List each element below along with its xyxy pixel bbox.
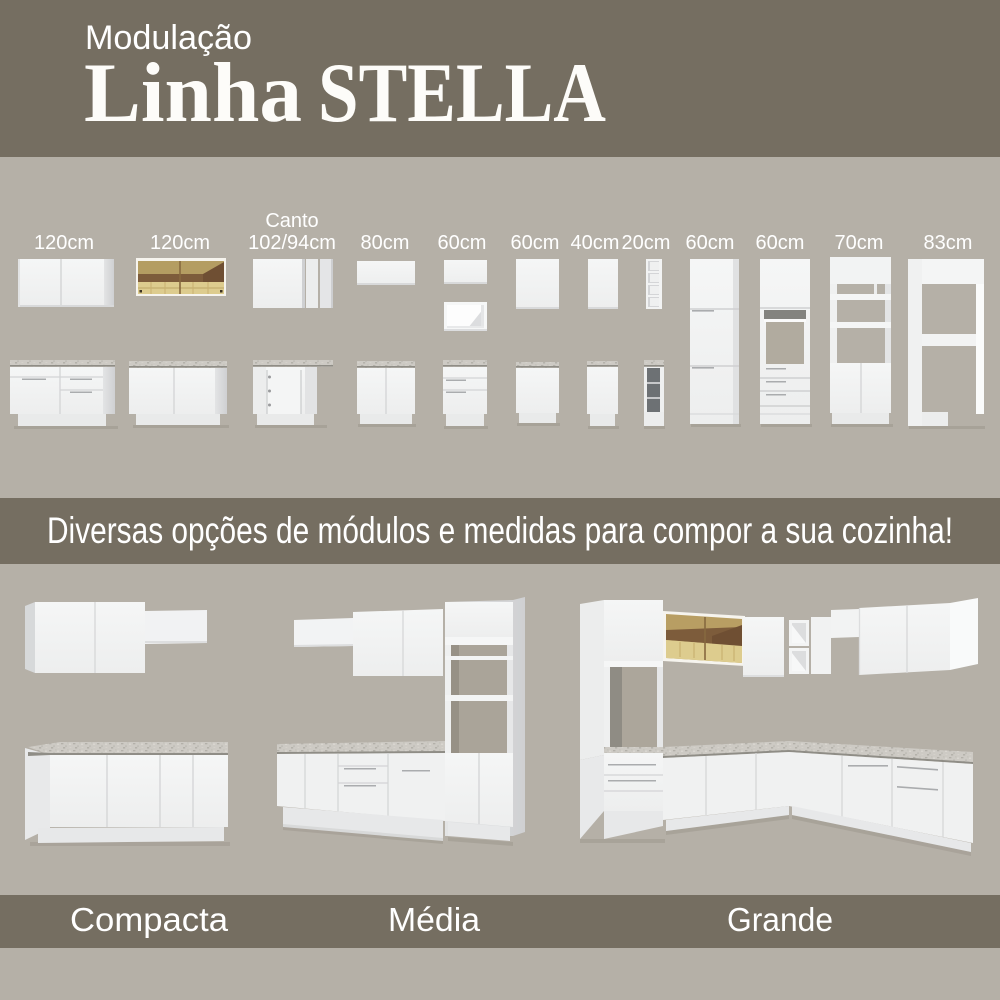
svg-text:60cm: 60cm	[756, 232, 805, 254]
svg-text:120cm: 120cm	[34, 232, 94, 254]
svg-text:Grande: Grande	[727, 901, 833, 938]
svg-text:20cm: 20cm	[622, 232, 671, 254]
svg-text:60cm: 60cm	[438, 232, 487, 254]
svg-text:Média: Média	[388, 901, 481, 938]
svg-text:70cm: 70cm	[835, 232, 884, 254]
svg-text:60cm: 60cm	[511, 232, 560, 254]
svg-text:STELLA: STELLA	[318, 46, 606, 140]
svg-text:120cm: 120cm	[150, 232, 210, 254]
svg-text:Canto: Canto	[265, 210, 318, 232]
svg-text:102/94cm: 102/94cm	[248, 232, 336, 254]
svg-text:40cm: 40cm	[571, 232, 620, 254]
svg-text:83cm: 83cm	[924, 232, 973, 254]
svg-text:80cm: 80cm	[361, 232, 410, 254]
svg-text:60cm: 60cm	[686, 232, 735, 254]
svg-text:Compacta: Compacta	[70, 901, 229, 938]
svg-text:Linha: Linha	[84, 46, 302, 140]
svg-text:Diversas opções de módulos e m: Diversas opções de módulos e medidas par…	[47, 510, 953, 551]
